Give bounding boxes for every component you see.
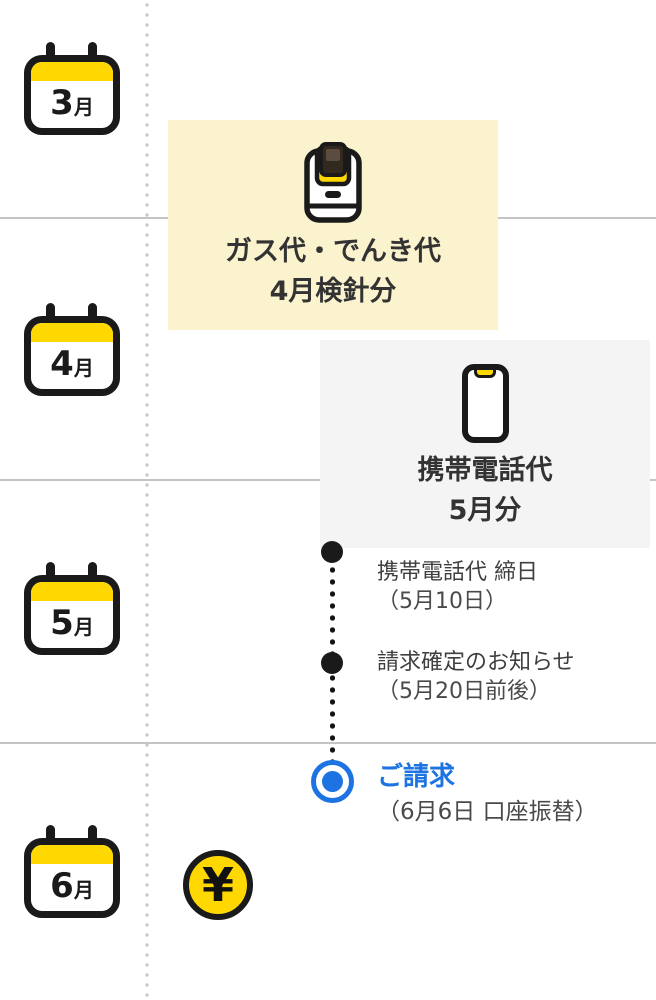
card-title-line2: 5月分 [320, 491, 650, 531]
smartphone-icon [462, 364, 509, 443]
yen-coin-icon: ¥ [183, 850, 253, 920]
billing-schedule-infographic: 3月 4月 5月 6月 [0, 0, 656, 1000]
month-divider-line [0, 742, 656, 744]
timeline-dot-closing-date [321, 541, 343, 563]
event-date: （6月6日 口座振替） [377, 798, 598, 827]
event-label: 携帯電話代 締日 [377, 558, 538, 587]
calendar-icon-may: 5月 [24, 562, 120, 655]
smartphone-notch [474, 370, 496, 378]
calendar-month-label: 6月 [31, 864, 113, 911]
month-axis-dotted-line [145, 0, 149, 1000]
mobile-card-title: 携帯電話代 5月分 [320, 451, 650, 531]
yen-symbol: ¥ [202, 862, 234, 908]
timeline-blue-target-dot [311, 760, 354, 803]
card-title-line2: 4月検針分 [168, 272, 498, 312]
calendar-month-label: 3月 [31, 81, 113, 128]
event-billing: ご請求 （6月6日 口座振替） [377, 760, 598, 827]
calendar-month-label: 4月 [31, 342, 113, 389]
mobile-phone-bill-card: 携帯電話代 5月分 [320, 340, 650, 548]
gas-electric-card-title: ガス代・でんき代 4月検針分 [168, 232, 498, 312]
calendar-icon-june: 6月 [24, 825, 120, 918]
calendar-icon-april: 4月 [24, 303, 120, 396]
event-closing-date: 携帯電話代 締日 （5月10日） [377, 558, 538, 616]
event-billing-notice: 請求確定のお知らせ （5月20日前後） [377, 648, 575, 706]
calendar-icon-march: 3月 [24, 42, 120, 135]
timeline-dot-billing-notice [321, 652, 343, 674]
event-date: （5月20日前後） [377, 677, 575, 706]
gas-meter-icon [304, 142, 362, 224]
event-label: ご請求 [377, 760, 598, 794]
card-title-line1: ガス代・でんき代 [168, 232, 498, 272]
gas-electric-bill-card: ガス代・でんき代 4月検針分 [168, 120, 498, 330]
event-label: 請求確定のお知らせ [377, 648, 575, 677]
event-date: （5月10日） [377, 587, 538, 616]
calendar-month-label: 5月 [31, 601, 113, 648]
card-title-line1: 携帯電話代 [320, 451, 650, 491]
